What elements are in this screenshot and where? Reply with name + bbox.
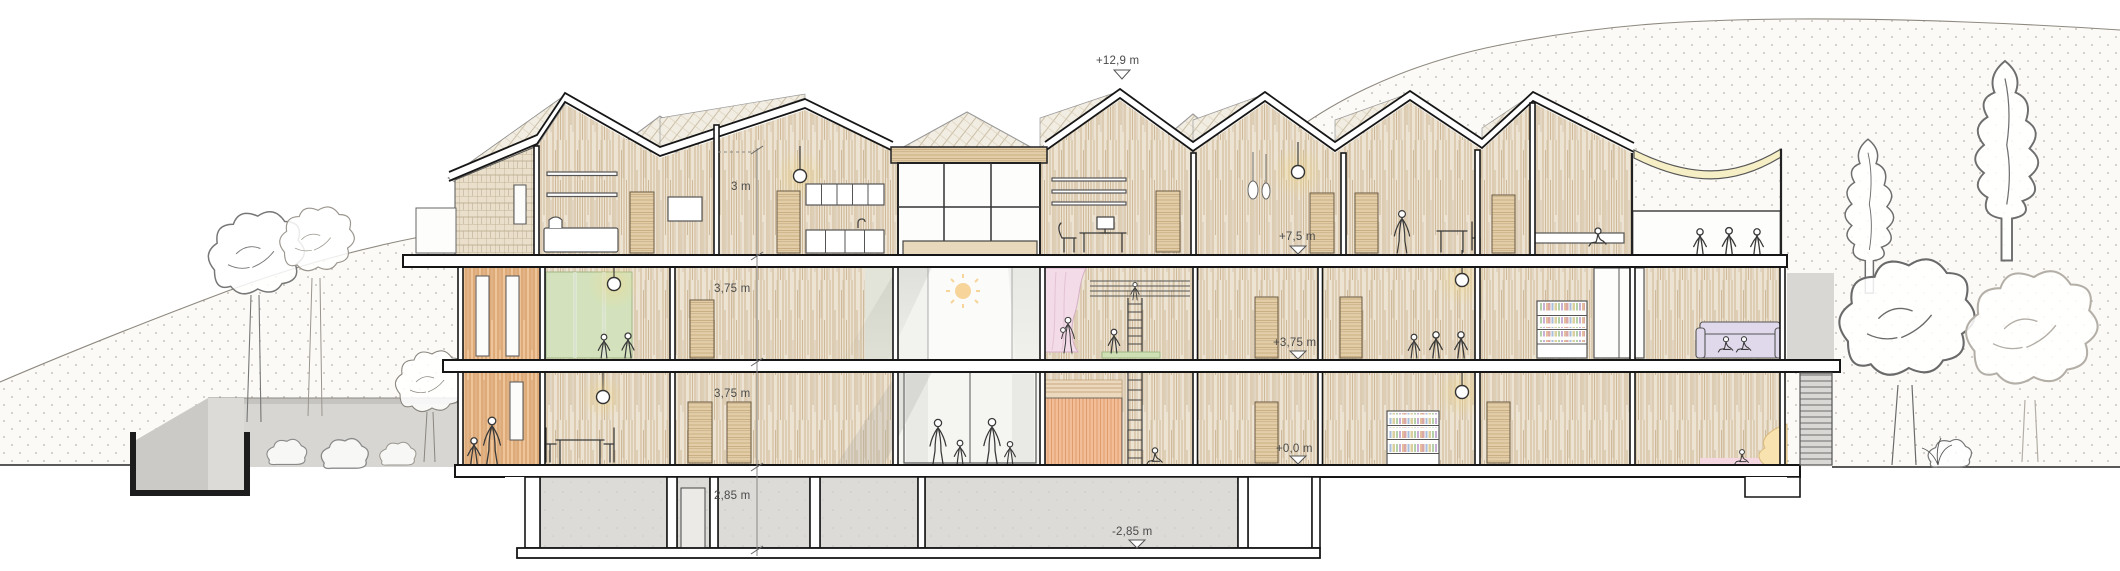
door bbox=[1492, 195, 1515, 253]
narrow-window bbox=[506, 276, 519, 356]
door bbox=[1310, 193, 1334, 253]
basement bbox=[505, 477, 1320, 558]
picture-frame bbox=[668, 197, 702, 221]
atrium-clerestory bbox=[891, 147, 1047, 255]
building-section bbox=[403, 89, 1840, 558]
wall-shelf bbox=[547, 193, 617, 197]
door bbox=[630, 192, 654, 253]
level-marker-ridge: +12,9 m bbox=[1096, 55, 1139, 79]
dormer-box bbox=[416, 208, 456, 253]
bookshelf bbox=[1537, 301, 1587, 358]
narrow-window bbox=[510, 382, 523, 440]
pendant-light bbox=[597, 391, 610, 404]
narrow-window bbox=[514, 185, 526, 224]
dim-label-attic: 3 m bbox=[731, 181, 751, 193]
door bbox=[777, 191, 800, 253]
door bbox=[727, 402, 751, 463]
kitchen-counter bbox=[806, 230, 884, 253]
corridor-wall bbox=[460, 267, 540, 360]
svg-text:+0,0 m: +0,0 m bbox=[1276, 443, 1313, 455]
dim-label-floor1: 3,75 m bbox=[714, 283, 750, 295]
svg-text:+3,75 m: +3,75 m bbox=[1273, 337, 1316, 349]
dim-label-basement: 2,85 m bbox=[714, 490, 750, 502]
slab-level-1 bbox=[443, 360, 1840, 372]
basement-door bbox=[681, 488, 705, 548]
kitchen-upper-cabinets bbox=[806, 184, 884, 205]
section-drawing: 3 m 3,75 m 3,75 m 2,85 m +12,9 m +7,5 m … bbox=[0, 0, 2120, 571]
svg-text:-2,85 m: -2,85 m bbox=[1112, 526, 1152, 538]
stage-podium bbox=[903, 241, 1037, 255]
door bbox=[688, 402, 712, 463]
footing-right bbox=[1745, 477, 1800, 497]
svg-text:+7,5 m: +7,5 m bbox=[1279, 231, 1316, 243]
narrow-window bbox=[476, 276, 489, 356]
door bbox=[690, 300, 714, 358]
section-svg: 3 m 3,75 m 3,75 m 2,85 m +12,9 m +7,5 m … bbox=[0, 0, 2120, 571]
door bbox=[1255, 402, 1278, 463]
dim-label-ground: 3,75 m bbox=[714, 388, 750, 400]
monitor bbox=[1097, 217, 1114, 229]
slab-ground bbox=[455, 465, 1800, 477]
ground-floor bbox=[458, 362, 1787, 465]
door bbox=[1355, 193, 1378, 253]
hanging-vase bbox=[1248, 181, 1258, 199]
pillow bbox=[549, 217, 562, 228]
door bbox=[1156, 191, 1180, 252]
svg-text:+12,9 m: +12,9 m bbox=[1096, 55, 1139, 67]
wall-shelf bbox=[547, 172, 617, 176]
hanging-vase bbox=[1262, 183, 1270, 199]
rear-recess bbox=[1787, 273, 1834, 360]
salmon-wall bbox=[1042, 398, 1122, 465]
bookshelf bbox=[1387, 411, 1439, 465]
slab-level-2 bbox=[403, 255, 1787, 267]
double-door-white bbox=[1594, 268, 1644, 358]
loft-platform bbox=[1534, 233, 1624, 243]
door bbox=[1487, 402, 1510, 463]
foundation-slab bbox=[517, 548, 1320, 558]
sofa-lavender bbox=[1696, 322, 1784, 358]
door bbox=[1340, 297, 1362, 358]
bed bbox=[544, 228, 618, 252]
